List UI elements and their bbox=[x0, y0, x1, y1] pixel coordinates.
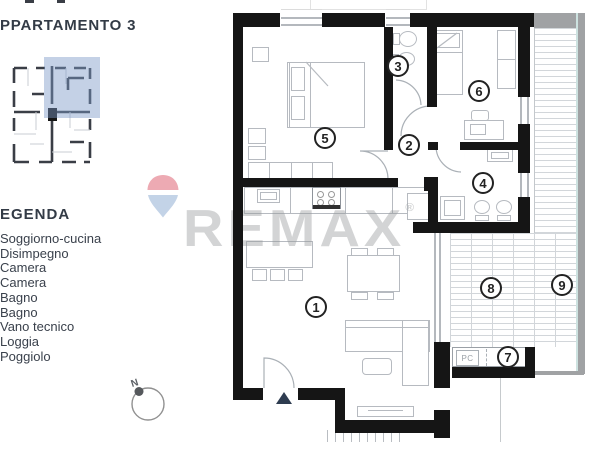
wall bbox=[428, 142, 438, 150]
sofa-chaise bbox=[402, 320, 429, 386]
stool bbox=[252, 269, 267, 281]
toilet-tank bbox=[475, 215, 489, 221]
room-marker-8: 8 bbox=[480, 277, 502, 299]
pillow bbox=[436, 33, 460, 48]
room-marker-4: 4 bbox=[472, 172, 494, 194]
wall bbox=[243, 178, 398, 187]
room-marker-1: 1 bbox=[305, 296, 327, 318]
window bbox=[527, 173, 529, 197]
page-title: PPARTAMENTO 3 bbox=[0, 17, 136, 34]
room-marker-2: 2 bbox=[398, 134, 420, 156]
room-marker-5: 5 bbox=[314, 127, 336, 149]
legend-item: Bagno bbox=[0, 306, 101, 321]
window bbox=[439, 233, 441, 342]
sofa-back-line bbox=[345, 327, 430, 328]
lower-balcony-line bbox=[500, 377, 501, 442]
legend-list: Soggiorno-cucina Disimpegno Camera Camer… bbox=[0, 232, 101, 364]
window-sill bbox=[281, 9, 322, 10]
loggia-bottom-edge bbox=[535, 371, 584, 375]
window bbox=[520, 173, 522, 197]
dresser bbox=[248, 146, 266, 160]
wall bbox=[525, 347, 535, 378]
wardrobe-divider bbox=[312, 162, 313, 179]
window bbox=[386, 17, 410, 19]
legend-item: Bagno bbox=[0, 291, 101, 306]
legend-item: Poggiolo bbox=[0, 350, 101, 365]
room-marker-6: 6 bbox=[468, 80, 490, 102]
window bbox=[281, 17, 322, 19]
laptop bbox=[470, 124, 486, 135]
room-marker-3: 3 bbox=[387, 55, 409, 77]
wall bbox=[233, 13, 243, 397]
loggia-hatch bbox=[534, 28, 579, 233]
legend-item: Camera bbox=[0, 276, 101, 291]
pillow bbox=[291, 67, 305, 91]
plan-fragment bbox=[57, 0, 65, 3]
wall bbox=[452, 367, 533, 378]
wall bbox=[384, 27, 393, 150]
shower-tray bbox=[444, 200, 461, 216]
pc-unit: PC bbox=[456, 350, 479, 366]
bed-fold-line bbox=[433, 52, 463, 53]
toilet bbox=[474, 200, 490, 214]
wall bbox=[460, 142, 518, 150]
loggia-right-wall bbox=[578, 13, 585, 374]
window bbox=[434, 233, 436, 342]
vano-divider bbox=[486, 349, 487, 366]
wall bbox=[413, 222, 530, 233]
tv-line bbox=[368, 410, 403, 411]
wall bbox=[424, 177, 438, 191]
window-sill bbox=[386, 9, 410, 10]
window bbox=[520, 97, 522, 124]
wardrobe-divider bbox=[291, 162, 292, 179]
wall bbox=[518, 124, 530, 173]
bed-fold-line bbox=[310, 62, 311, 128]
entrance-marker bbox=[276, 392, 292, 404]
legend-item: Loggia bbox=[0, 335, 101, 350]
bidet bbox=[496, 200, 512, 214]
bidet-tank bbox=[497, 215, 511, 221]
apartment-highlight-overlay bbox=[44, 57, 100, 118]
legend-item: Soggiorno-cucina bbox=[0, 232, 101, 247]
legend-item: Camera bbox=[0, 261, 101, 276]
loggia-inner-line bbox=[576, 13, 578, 371]
floorplan-page: PPARTAMENTO 3 EGENDA Soggiorno-cucina Di… bbox=[0, 0, 600, 450]
legend-item: Vano tecnico bbox=[0, 320, 101, 335]
registered-mark: ® bbox=[405, 201, 414, 214]
wall bbox=[428, 191, 438, 222]
dresser bbox=[248, 128, 266, 144]
dining-table bbox=[347, 255, 400, 292]
burner bbox=[317, 191, 324, 198]
tv-cabinet bbox=[357, 406, 414, 417]
sink-basin bbox=[491, 152, 509, 159]
nightstand bbox=[252, 47, 269, 62]
window bbox=[527, 97, 529, 124]
wardrobe-divider bbox=[497, 59, 516, 60]
wall bbox=[233, 388, 263, 400]
stool bbox=[288, 269, 303, 281]
chair bbox=[377, 292, 394, 300]
legend-item: Disimpegno bbox=[0, 247, 101, 262]
wall bbox=[322, 13, 385, 27]
north-compass: N bbox=[126, 374, 172, 424]
wardrobe-divider bbox=[269, 162, 270, 179]
remax-watermark: REMAX® bbox=[183, 198, 414, 258]
window bbox=[386, 24, 410, 26]
wall bbox=[427, 27, 437, 107]
room-marker-9: 9 bbox=[551, 274, 573, 296]
north-label: N bbox=[130, 377, 140, 390]
remax-balloon-icon bbox=[146, 175, 180, 218]
plan-fragment bbox=[25, 0, 34, 3]
wall bbox=[518, 27, 530, 97]
legend-heading: EGENDA bbox=[0, 206, 70, 223]
burner bbox=[328, 191, 335, 198]
bed-headboard-line bbox=[289, 62, 290, 128]
stool bbox=[270, 269, 285, 281]
toilet bbox=[399, 31, 417, 47]
chair bbox=[351, 292, 368, 300]
wall bbox=[335, 420, 438, 433]
pillow bbox=[291, 96, 305, 120]
window bbox=[281, 24, 322, 26]
room-marker-7: 7 bbox=[497, 346, 519, 368]
wall bbox=[434, 342, 450, 388]
ottoman bbox=[362, 358, 392, 375]
wall bbox=[410, 13, 534, 27]
wall bbox=[434, 410, 450, 438]
